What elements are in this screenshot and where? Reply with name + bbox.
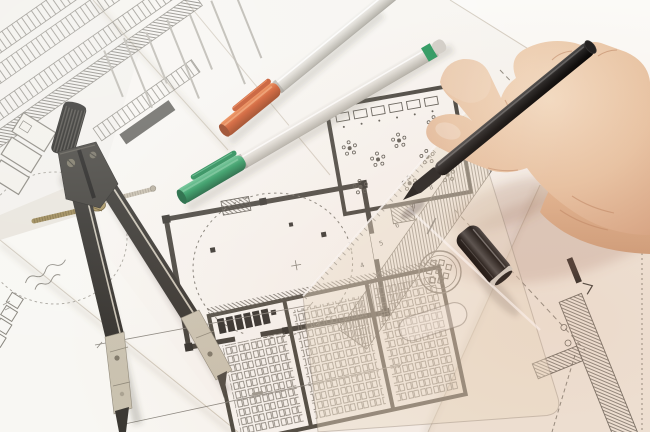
scene-canvas: 4 5 6 7 8	[0, 0, 650, 432]
lighting	[0, 0, 650, 432]
photo-scene: 4 5 6 7 8	[0, 0, 650, 432]
